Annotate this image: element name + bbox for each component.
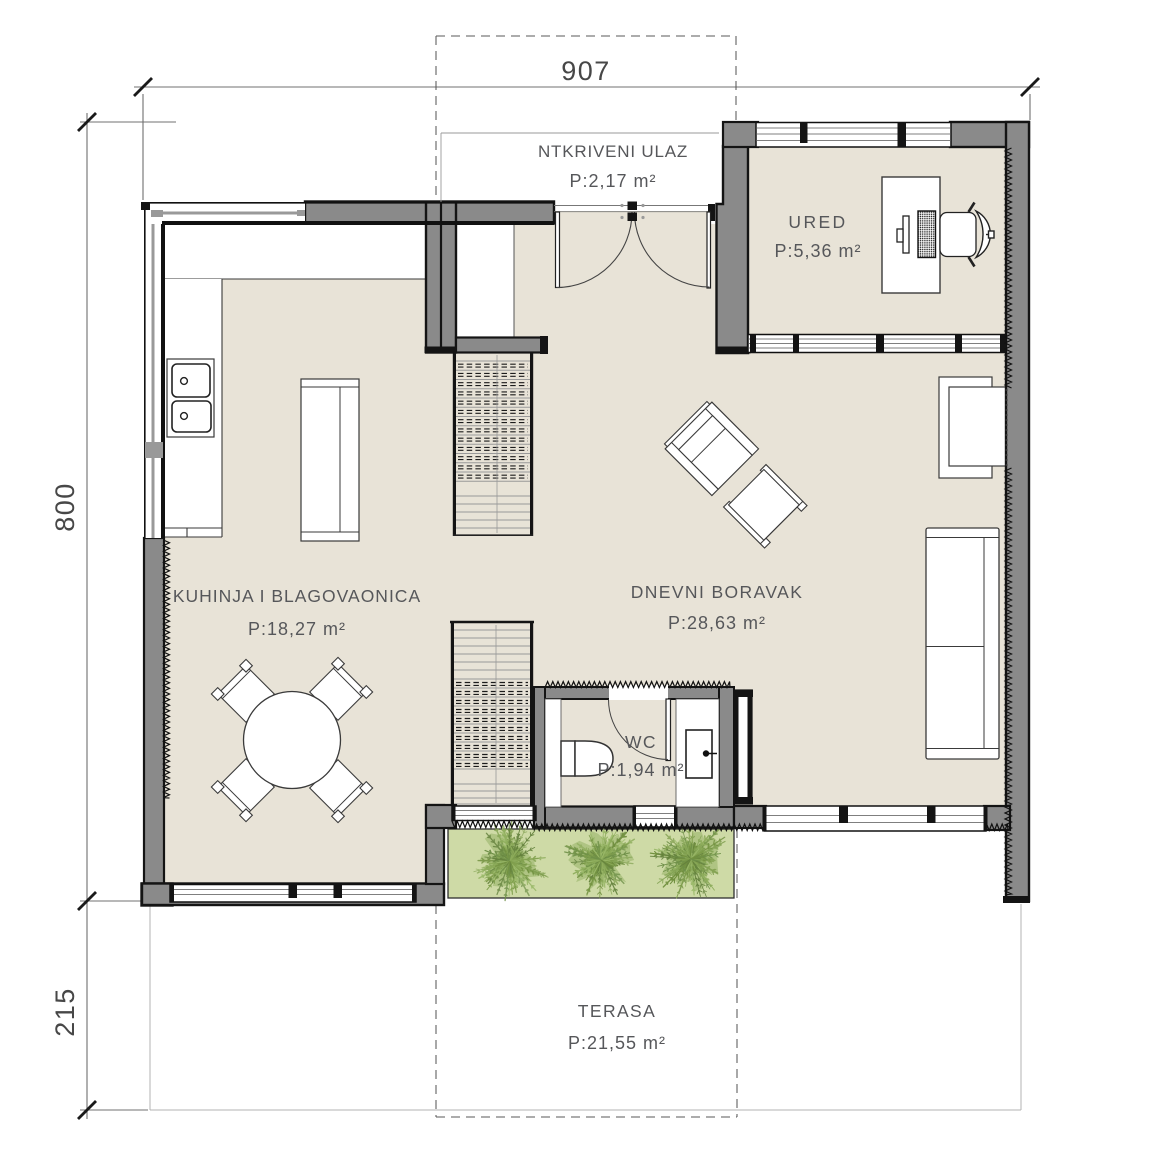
svg-text:URED: URED [788, 212, 847, 232]
svg-text:215: 215 [50, 987, 80, 1037]
svg-text:P:1,94 m²: P:1,94 m² [597, 760, 684, 780]
svg-text:P:28,63 m²: P:28,63 m² [668, 613, 766, 633]
svg-text:TERASA: TERASA [578, 1001, 656, 1021]
svg-text:DNEVNI BORAVAK: DNEVNI BORAVAK [631, 582, 804, 602]
svg-text:P:2,17 m²: P:2,17 m² [569, 171, 656, 191]
svg-text:800: 800 [50, 482, 80, 532]
svg-text:907: 907 [561, 56, 611, 86]
svg-text:WC: WC [625, 732, 657, 752]
svg-text:P:21,55 m²: P:21,55 m² [568, 1033, 666, 1053]
svg-text:KUHINJA I BLAGOVAONICA: KUHINJA I BLAGOVAONICA [173, 586, 421, 606]
svg-text:P:5,36 m²: P:5,36 m² [774, 241, 861, 261]
svg-text:P:18,27 m²: P:18,27 m² [248, 619, 346, 639]
svg-text:NTKRIVENI ULAZ: NTKRIVENI ULAZ [538, 142, 688, 161]
